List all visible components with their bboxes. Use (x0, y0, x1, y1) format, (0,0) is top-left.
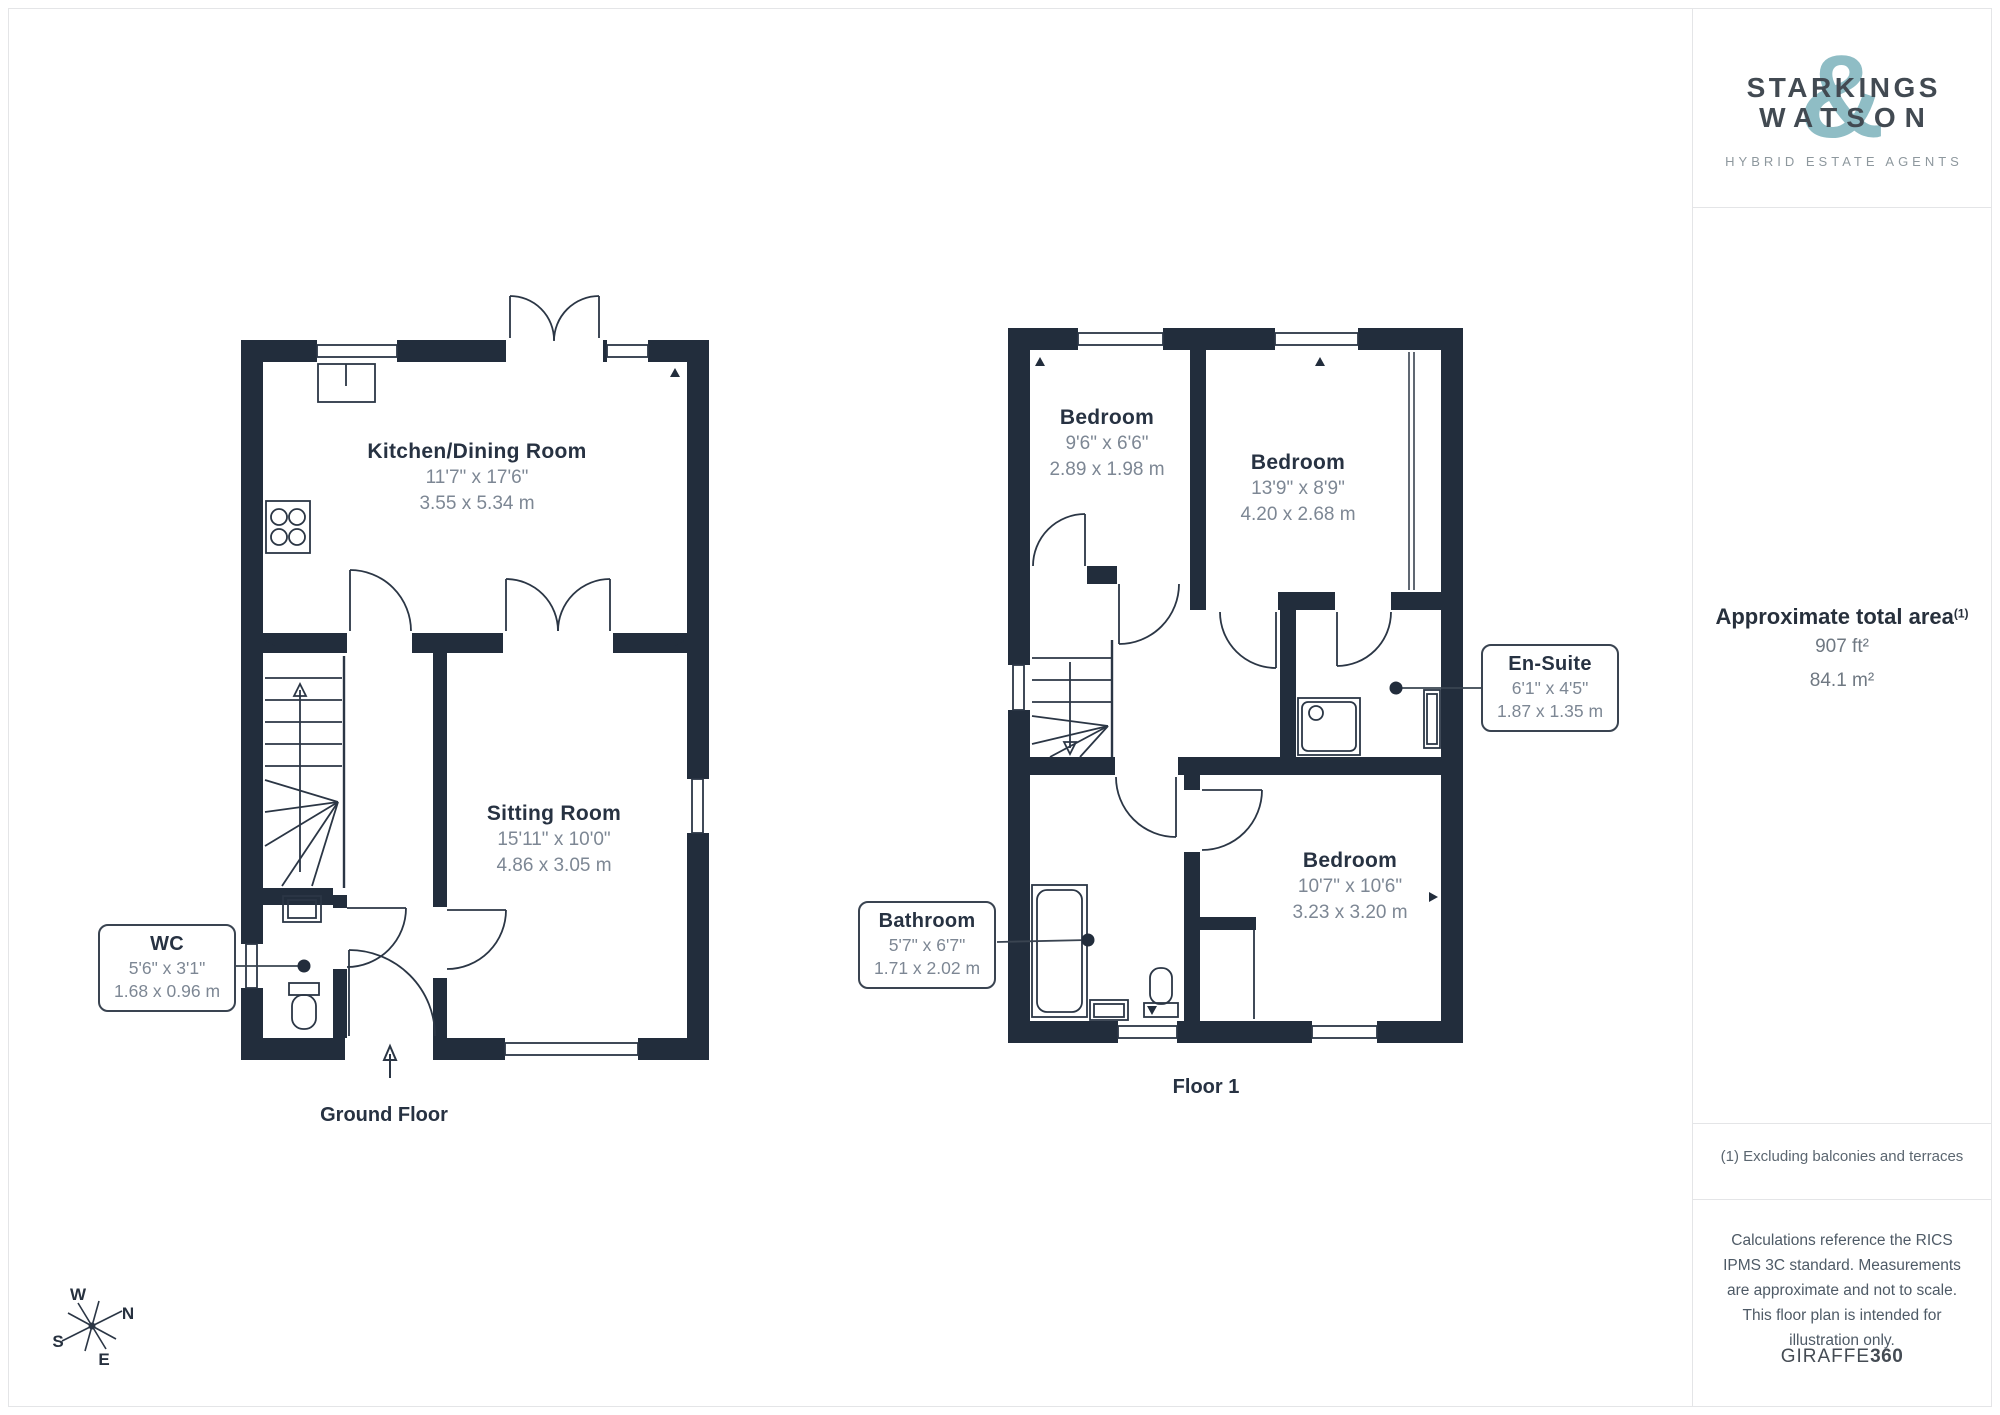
compass-west-label: W (70, 1285, 87, 1304)
bathroom-basin-icon (1090, 1000, 1128, 1020)
room-name: Bathroom (874, 908, 980, 934)
provider-suffix: 360 (1870, 1346, 1903, 1367)
room-name: Kitchen/Dining Room (367, 438, 586, 465)
room-dim-imperial: 6'1" x 4'5" (1497, 677, 1603, 700)
compass-rose: W N S E (52, 1285, 134, 1369)
wardrobe-icon (1409, 352, 1414, 590)
bathtub-icon (1032, 885, 1087, 1017)
compass-north-label: N (122, 1304, 134, 1323)
room-name: Bedroom (1292, 847, 1407, 874)
room-name: WC (114, 931, 220, 957)
room-dim-imperial: 13'9" x 8'9" (1240, 476, 1355, 502)
room-dim-metric: 3.23 x 3.20 m (1292, 900, 1407, 926)
total-area-metric: 84.1 m² (1692, 664, 1992, 698)
staircase-first (1032, 640, 1112, 757)
room-name: Bedroom (1240, 449, 1355, 476)
ground-floor-caption: Ground Floor (320, 1104, 448, 1127)
provider-logo: GIRAFFE360 (1692, 1346, 1992, 1368)
room-dim-metric: 4.86 x 3.05 m (487, 853, 621, 879)
room-dim-imperial: 5'7" x 6'7" (874, 934, 980, 957)
room-dim-metric: 3.55 x 5.34 m (367, 491, 586, 517)
room-dim-imperial: 9'6" x 6'6" (1049, 431, 1164, 457)
compass-east-label: E (98, 1350, 109, 1369)
logo-tagline: HYBRID ESTATE AGENTS (1692, 154, 1992, 169)
logo-line2: WATSON (1692, 102, 1992, 134)
compass-south-label: S (52, 1332, 63, 1351)
door-swing-icon (1033, 514, 1391, 850)
total-area-block: Approximate total area(1) 907 ft² 84.1 m… (1692, 604, 1992, 698)
room-label-sitting: Sitting Room 15'11" x 10'0" 4.86 x 3.05 … (487, 800, 621, 879)
provider-name: GIRAFFE (1781, 1346, 1870, 1367)
french-door-icon (510, 296, 599, 341)
room-label-bedroom2: Bedroom 13'9" x 8'9" 4.20 x 2.68 m (1240, 449, 1355, 528)
room-name: En-Suite (1497, 651, 1603, 677)
room-label-kitchen: Kitchen/Dining Room 11'7" x 17'6" 3.55 x… (367, 438, 586, 517)
staircase-ground (265, 656, 344, 888)
ensuite-basin-icon (1424, 690, 1440, 748)
callout-ensuite: En-Suite 6'1" x 4'5" 1.87 x 1.35 m (1481, 644, 1619, 732)
room-name: Sitting Room (487, 800, 621, 827)
room-dim-imperial: 11'7" x 17'6" (367, 465, 586, 491)
hob-icon (266, 501, 310, 553)
room-dim-metric: 1.68 x 0.96 m (114, 980, 220, 1003)
exclusion-note: (1) Excluding balconies and terraces (1692, 1148, 1992, 1165)
room-dim-imperial: 10'7" x 10'6" (1292, 874, 1407, 900)
room-label-bedroom3: Bedroom 10'7" x 10'6" 3.23 x 3.20 m (1292, 847, 1407, 926)
room-name: Bedroom (1049, 404, 1164, 431)
ensuite-leader-dot (1390, 682, 1403, 695)
room-dim-metric: 4.20 x 2.68 m (1240, 502, 1355, 528)
toilet-icon (289, 983, 319, 1029)
logo-line1: STARKINGS (1692, 72, 1992, 104)
callout-bathroom: Bathroom 5'7" x 6'7" 1.71 x 2.02 m (858, 901, 996, 989)
wc-sink-icon (283, 896, 321, 922)
room-dim-metric: 2.89 x 1.98 m (1049, 457, 1164, 483)
kitchen-unit-icon (318, 364, 375, 402)
room-dim-imperial: 15'11" x 10'0" (487, 827, 621, 853)
callout-wc: WC 5'6" x 3'1" 1.68 x 0.96 m (98, 924, 236, 1012)
room-label-bedroom1: Bedroom 9'6" x 6'6" 2.89 x 1.98 m (1049, 404, 1164, 483)
disclaimer-text: Calculations reference the RICS IPMS 3C … (1712, 1228, 1972, 1353)
first-floor-caption: Floor 1 (1173, 1076, 1240, 1099)
room-dim-imperial: 5'6" x 3'1" (114, 957, 220, 980)
floorplan-page: W N S E Kitchen/Dining Room 11'7" x 17'6… (0, 0, 2000, 1415)
total-area-footnote-marker: (1) (1954, 607, 1969, 621)
shower-icon (1298, 698, 1360, 755)
sidebar: & STARKINGS WATSON HYBRID ESTATE AGENTS … (1692, 8, 1992, 1407)
wc-leader-dot (298, 960, 311, 973)
bathroom-leader-dot (1082, 934, 1095, 947)
total-area-imperial: 907 ft² (1692, 630, 1992, 664)
ground-floor-plan (225, 296, 709, 1078)
total-area-title: Approximate total area (1715, 604, 1953, 629)
room-dim-metric: 1.87 x 1.35 m (1497, 700, 1603, 723)
room-dim-metric: 1.71 x 2.02 m (874, 957, 980, 980)
